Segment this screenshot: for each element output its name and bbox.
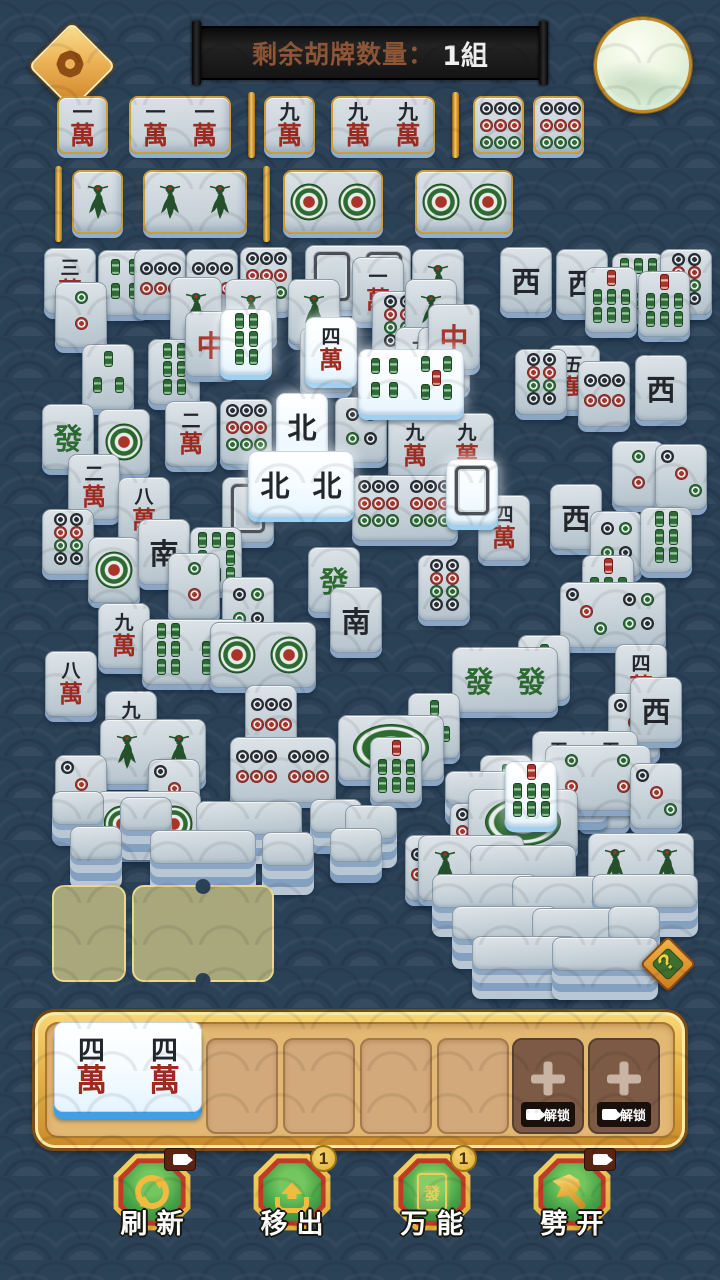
mahjong-tile[interactable] — [42, 509, 94, 575]
wildcard-button[interactable]: 發 1 万能 — [390, 1152, 474, 1264]
gear-icon — [51, 45, 89, 83]
mahjong-tile[interactable] — [230, 737, 336, 803]
mahjong-tile[interactable] — [505, 761, 557, 827]
video-badge — [164, 1148, 196, 1171]
tile-stack-edge — [120, 797, 172, 831]
tray-slot-empty — [437, 1038, 509, 1134]
tray-slot-locked[interactable]: 解锁 — [512, 1038, 584, 1134]
empty-slot-double — [132, 885, 274, 982]
mahjong-tile[interactable]: 西 — [635, 355, 687, 421]
moon-decoration — [594, 17, 692, 113]
group-separator — [55, 166, 62, 242]
group-separator — [452, 92, 459, 158]
unlock-label: 解锁 — [620, 1105, 646, 1124]
video-camera-icon — [526, 1109, 541, 1120]
slot-notch — [196, 973, 211, 988]
tile-stack-edge — [608, 906, 660, 940]
mahjong-tile[interactable]: 二萬 — [165, 401, 217, 467]
mahjong-tile[interactable] — [82, 344, 134, 410]
mahjong-tile[interactable] — [655, 444, 707, 510]
settings-button[interactable] — [30, 24, 110, 104]
refresh-button[interactable]: 刷新 — [110, 1152, 194, 1264]
video-camera-icon — [173, 1154, 188, 1165]
tile-stack-edge — [330, 828, 382, 862]
mahjong-tile[interactable] — [370, 737, 422, 803]
tile-stack-edge — [592, 874, 698, 908]
unlock-label: 解锁 — [544, 1105, 570, 1124]
remaining-banner: 剩余胡牌数量： 1組 — [195, 28, 545, 78]
mahjong-tile[interactable] — [515, 349, 567, 415]
mahjong-tile — [72, 170, 123, 234]
mahjong-tile[interactable] — [585, 267, 637, 333]
help-button[interactable]: ? — [641, 937, 691, 987]
move-out-button[interactable]: 1 移出 — [250, 1152, 334, 1264]
mahjong-tile[interactable] — [578, 361, 630, 427]
mahjong-tile[interactable]: 四萬 — [305, 317, 357, 383]
tile-stack-edge — [150, 830, 256, 864]
mahjong-tile[interactable]: 北北 — [248, 451, 354, 517]
tile-stack-edge — [262, 832, 314, 866]
tray-slot-empty — [283, 1038, 355, 1134]
count-badge: 1 — [310, 1145, 337, 1172]
mahjong-tile[interactable]: 四萬四萬 — [54, 1022, 202, 1112]
mahjong-tile[interactable]: 北 — [276, 393, 328, 459]
group-separator — [263, 166, 270, 242]
refresh-label: 刷新 — [82, 1202, 222, 1241]
mahjong-tile: 一萬 — [57, 96, 108, 154]
mahjong-tile[interactable] — [630, 763, 682, 829]
mahjong-tile — [143, 170, 247, 234]
mahjong-tile[interactable] — [358, 349, 464, 415]
mahjong-tile[interactable] — [168, 553, 220, 619]
mahjong-tile: 九萬九萬 — [331, 96, 435, 154]
banner-rod-right — [539, 21, 548, 85]
tile-stack-edge — [70, 826, 122, 860]
mahjong-tile[interactable]: 八萬 — [45, 651, 97, 717]
move-out-label: 移出 — [222, 1202, 362, 1241]
plus-icon — [607, 1074, 641, 1083]
mahjong-tile — [533, 96, 584, 154]
video-camera-icon — [602, 1109, 617, 1120]
mahjong-tile[interactable] — [55, 282, 107, 348]
mahjong-tile[interactable] — [88, 537, 140, 603]
wildcard-label: 万能 — [362, 1202, 502, 1241]
mahjong-tile[interactable] — [640, 507, 692, 573]
split-label: 劈开 — [502, 1202, 642, 1241]
mahjong-tile: 一萬一萬 — [129, 96, 231, 154]
banner-label: 剩余胡牌数量： — [252, 35, 434, 71]
mahjong-tile[interactable] — [220, 309, 272, 375]
tray-slot-locked[interactable]: 解锁 — [588, 1038, 660, 1134]
split-button[interactable]: 劈开 — [530, 1152, 614, 1264]
count-badge: 1 — [450, 1145, 477, 1172]
mahjong-tile — [415, 170, 513, 234]
mahjong-tile: 九萬 — [264, 96, 315, 154]
mahjong-tile — [283, 170, 383, 234]
question-icon: ? — [631, 927, 702, 998]
mahjong-tile[interactable] — [418, 555, 470, 621]
banner-rod-left — [192, 21, 201, 85]
mahjong-tile[interactable]: 西 — [500, 247, 552, 313]
mahjong-tile[interactable] — [638, 271, 690, 337]
mahjong-tile[interactable] — [210, 622, 316, 688]
mahjong-tile[interactable] — [352, 475, 458, 541]
facedown-tile[interactable] — [446, 459, 498, 525]
tile-stack-edge — [52, 791, 104, 825]
video-camera-icon — [593, 1154, 608, 1165]
tray-slot-empty — [360, 1038, 432, 1134]
mahjong-tile[interactable]: 發發 — [452, 647, 558, 713]
banner-value: 1組 — [442, 34, 488, 73]
empty-slot-single — [52, 885, 126, 982]
mahjong-tile[interactable]: 南 — [330, 587, 382, 653]
slot-notch — [196, 879, 211, 894]
plus-icon — [531, 1074, 565, 1083]
video-badge — [584, 1148, 616, 1171]
mahjong-tile[interactable]: 西 — [630, 677, 682, 743]
mahjong-tile[interactable] — [560, 582, 666, 648]
group-separator — [248, 92, 255, 158]
game-screen: 剩余胡牌数量： 1組 一萬一萬一萬九萬九萬九萬 三萬一萬西西中二萬九萬二萬中五萬… — [0, 0, 720, 1280]
mahjong-tile — [473, 96, 524, 154]
tray-slot-empty — [206, 1038, 278, 1134]
